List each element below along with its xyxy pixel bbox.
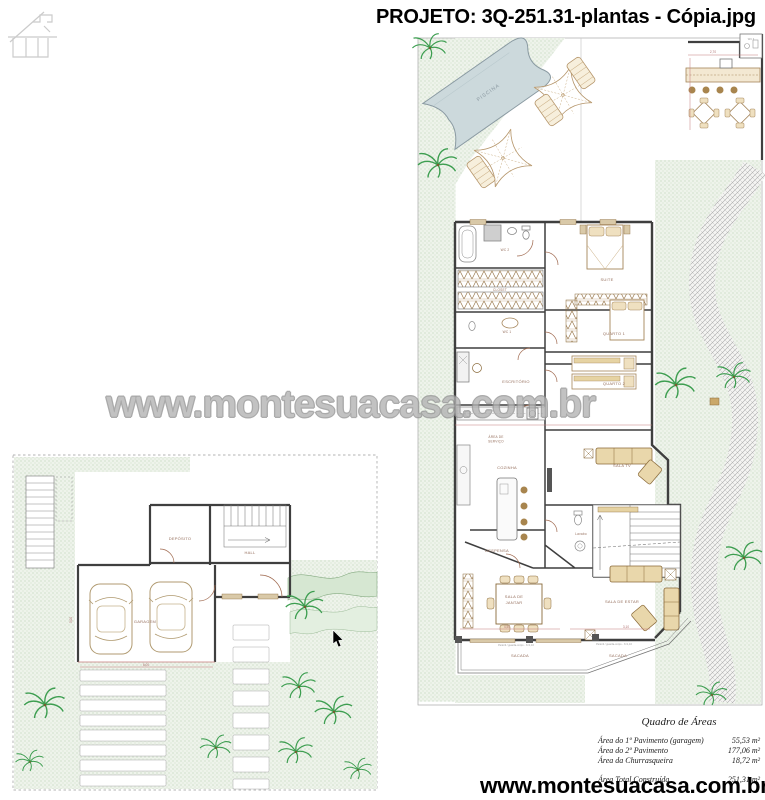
site-logo-house-icon [8, 12, 57, 57]
room-label-jantar-2: JANTAR [506, 600, 523, 605]
room-label-cozinha: COZINHA [497, 465, 517, 470]
area-row-value: 18,72 m² [732, 756, 760, 766]
room-label-quarto2: QUARTO 2 [603, 381, 626, 386]
area-row-label: Área do 2º Pavimento [598, 746, 668, 756]
dim-garage-h: 3,00 [69, 617, 73, 623]
hall-stairs [224, 505, 286, 547]
room-label-sacada-2: SACADA [609, 653, 627, 658]
areas-table-row: Área do 2º Pavimento 177,06 m² [598, 746, 760, 756]
areas-table-row: Área do 1º Pavimento (garagem) 55,53 m² [598, 736, 760, 746]
room-label-despensa: DESPENSA [485, 548, 509, 553]
areas-table-row: Área da Churrasqueira 18,72 m² [598, 756, 760, 766]
wc2-fixtures [459, 225, 530, 262]
room-label-sacada-1: SACADA [511, 653, 529, 658]
area-row-label: Área do 1º Pavimento (garagem) [598, 736, 704, 746]
cozinha-furniture [457, 445, 528, 541]
room-label-suite: SUITE [600, 277, 613, 282]
site-stairs [26, 476, 54, 568]
dim-estar: 3,10 [623, 625, 629, 629]
room-label-salatv: SALA TV [613, 463, 631, 468]
dim-jantar: 4,50 [504, 625, 510, 629]
room-label-jantar-1: SALA DE [505, 594, 524, 599]
area-row-value: 55,53 m² [732, 736, 760, 746]
rail-note-1: Peitoril / guarda-corpo - h=1,10 [498, 643, 534, 647]
lavabo-fixtures [574, 511, 585, 551]
room-label-hall: HALL [244, 550, 256, 555]
site-url: www.montesuacasa.com.br [480, 773, 765, 799]
salatv-furniture [547, 448, 663, 492]
escritorio-furniture [457, 352, 482, 382]
room-label-garagem: GARAGEM [134, 619, 156, 624]
lower-floor-plan: DEPÓSITO HALL GARAGEM 6,00 3,00 [13, 455, 377, 790]
room-label-estar: SALA DE ESTAR [605, 599, 639, 604]
dim-garage-w: 6,00 [143, 663, 149, 667]
watermark-text: www.montesuacasa.com.br [106, 383, 595, 427]
rail-note-2: Peitoril / guarda-corpo - h=1,10 [596, 642, 632, 646]
upper-floor-plan: PISCINA WC 3 [412, 34, 762, 705]
room-label-closet: CLOSET [493, 288, 507, 292]
area-row-label: Área da Churrasqueira [598, 756, 673, 766]
room-label-servico-2: SERVIÇO [488, 440, 504, 444]
wc3-label: WC 3 [748, 37, 755, 41]
areas-table-title: Quadro de Áreas [598, 716, 760, 728]
room-label-deposito: DEPÓSITO [169, 536, 192, 541]
room-label-wc2: WC 2 [501, 248, 510, 252]
room-label-lavabo: Lavabo [575, 532, 587, 536]
room-label-wc1: WC 1 [503, 330, 512, 334]
room-label-servico-1: ÁREA DE [488, 435, 503, 439]
floorplan-image-viewer: PROJETO: 3Q-251.31-plantas - Cópia.jpg [0, 0, 765, 800]
area-row-value: 177,06 m² [728, 746, 760, 756]
churrasqueira-area: WC 3 2,70 [686, 34, 762, 160]
room-label-quarto1: QUARTO 1 [603, 331, 626, 336]
suite-furniture [575, 225, 647, 305]
dim-270: 2,70 [710, 50, 716, 54]
